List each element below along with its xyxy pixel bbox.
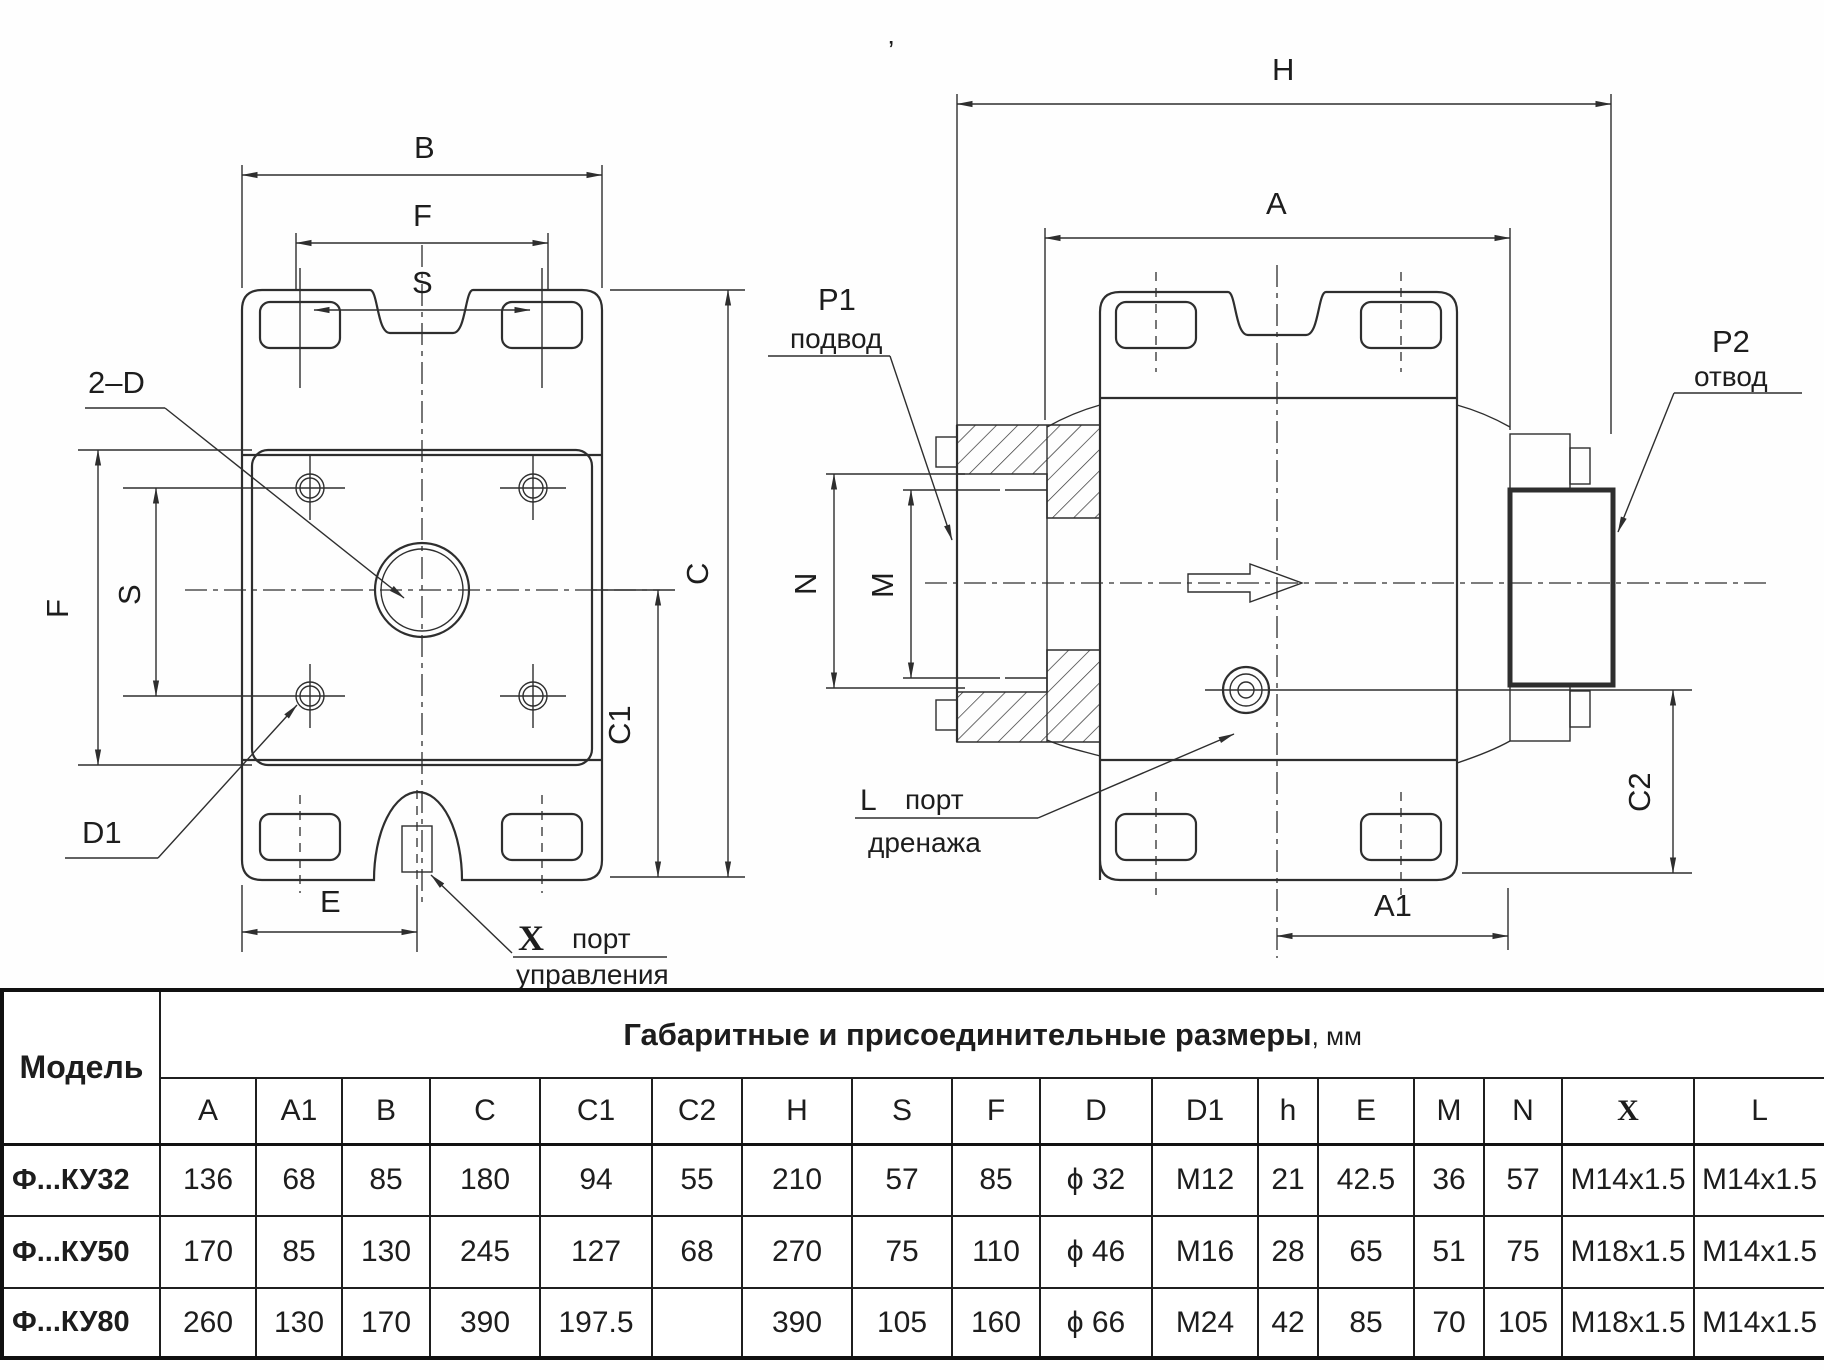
table-title-text: Габаритные и присоединительные размеры [623, 1017, 1311, 1052]
dim-label-s-side: S [112, 584, 147, 605]
cell: 110 [952, 1216, 1040, 1288]
callout-2d-label: 2–D [88, 365, 145, 400]
cell: 390 [430, 1288, 540, 1358]
cell: 130 [342, 1216, 430, 1288]
outlet-port-block [1457, 405, 1613, 763]
col-header-c: C [430, 1078, 540, 1144]
dim-label-n: N [788, 573, 823, 595]
cell: 42.5 [1318, 1144, 1414, 1216]
tick-mark: ’ [888, 35, 894, 66]
dim-label-e: E [320, 884, 341, 919]
dim-label-b: B [414, 130, 435, 165]
cell: 57 [1484, 1144, 1562, 1216]
l-port-symbol: L [860, 784, 877, 817]
cell: 68 [652, 1216, 742, 1288]
cell: 21 [1258, 1144, 1318, 1216]
cell: 75 [852, 1216, 952, 1288]
col-header-a1: A1 [256, 1078, 342, 1144]
cell: 85 [952, 1144, 1040, 1216]
table-title: Габаритные и присоединительные размеры, … [160, 990, 1824, 1078]
drawing-canvas: B F S F S C C1 [0, 0, 1824, 990]
cell: 28 [1258, 1216, 1318, 1288]
dim-label-c1: C1 [602, 705, 637, 745]
l-port-word1: порт [905, 784, 964, 815]
dimensions-table: Модель Габаритные и присоединительные ра… [0, 988, 1824, 1360]
col-header-d1: D1 [1152, 1078, 1258, 1144]
p2-label: P2 [1712, 324, 1750, 359]
col-header-e: E [1318, 1078, 1414, 1144]
bolt-holes [123, 456, 566, 728]
callout-2d-leader [165, 408, 404, 598]
cell: M18x1.5 [1562, 1216, 1694, 1288]
cell: 68 [256, 1144, 342, 1216]
callout-d1-leader [158, 705, 297, 858]
cell: 42 [1258, 1288, 1318, 1358]
col-header-x: X [1562, 1078, 1694, 1144]
cell: 85 [342, 1144, 430, 1216]
cell: 136 [160, 1144, 256, 1216]
col-header-d: D [1040, 1078, 1152, 1144]
flange-bolt [936, 437, 957, 467]
col-header-l: L [1694, 1078, 1824, 1144]
dim-label-c2: C2 [1622, 772, 1657, 812]
body-outline [1100, 292, 1457, 880]
flange-bolt [936, 700, 957, 730]
model-name: Ф...КУ32 [2, 1144, 160, 1216]
cell: 75 [1484, 1216, 1562, 1288]
cell: 180 [430, 1144, 540, 1216]
cell: 105 [1484, 1288, 1562, 1358]
cell: M14x1.5 [1694, 1216, 1824, 1288]
cell: 105 [852, 1288, 952, 1358]
dim-label-s-top: S [412, 265, 433, 300]
x-port-leader [431, 875, 512, 953]
cell: 170 [342, 1288, 430, 1358]
cell: M18x1.5 [1562, 1288, 1694, 1358]
cell: M12 [1152, 1144, 1258, 1216]
col-header-s: S [852, 1078, 952, 1144]
cell: M24 [1152, 1288, 1258, 1358]
table-row: Ф...КУ32 136 68 85 180 94 55 210 57 85 ϕ… [2, 1144, 1824, 1216]
cell: M16 [1152, 1216, 1258, 1288]
dim-label-c: C [680, 563, 715, 585]
col-header-h: H [742, 1078, 852, 1144]
col-header-h-small: h [1258, 1078, 1318, 1144]
x-port-square [402, 826, 432, 872]
x-port-symbol: X [518, 918, 544, 958]
model-name: Ф...КУ80 [2, 1288, 160, 1358]
col-header-b: B [342, 1078, 430, 1144]
cell: 85 [256, 1216, 342, 1288]
dim-label-f-top: F [413, 198, 432, 233]
col-header-c1: C1 [540, 1078, 652, 1144]
cell: 270 [742, 1216, 852, 1288]
cell [652, 1288, 742, 1358]
callout-d1-label: D1 [82, 815, 122, 850]
p1-label: P1 [818, 282, 856, 317]
dim-label-h: H [1272, 52, 1294, 87]
cell: 197.5 [540, 1288, 652, 1358]
cell: ϕ 46 [1040, 1216, 1152, 1288]
cell: 51 [1414, 1216, 1484, 1288]
table-row: Ф...КУ80 260 130 170 390 197.5 390 105 1… [2, 1288, 1824, 1358]
inlet-flange-section [936, 405, 1100, 756]
technical-drawing-page: B F S F S C C1 [0, 0, 1824, 1370]
dim-label-a: A [1266, 186, 1287, 221]
table-title-unit: , мм [1312, 1021, 1362, 1051]
cell: ϕ 32 [1040, 1144, 1152, 1216]
p1-leader [890, 356, 952, 540]
model-name: Ф...КУ50 [2, 1216, 160, 1288]
cell: 57 [852, 1144, 952, 1216]
p2-leader [1618, 393, 1674, 532]
table-row: Ф...КУ50 170 85 130 245 127 68 270 75 11… [2, 1216, 1824, 1288]
cell: 127 [540, 1216, 652, 1288]
l-port-word2: дренажа [868, 827, 981, 858]
col-header-m: M [1414, 1078, 1484, 1144]
slot-bottom-left [1116, 814, 1196, 860]
cell: 65 [1318, 1216, 1414, 1288]
slot-bottom-right [502, 814, 582, 860]
cell: 70 [1414, 1288, 1484, 1358]
cell: 170 [160, 1216, 256, 1288]
cell: ϕ 66 [1040, 1288, 1152, 1358]
front-view: B F S F S C C1 [40, 130, 745, 990]
cell: 245 [430, 1216, 540, 1288]
cell: 55 [652, 1144, 742, 1216]
cell: M14x1.5 [1562, 1144, 1694, 1216]
dim-label-m: M [865, 572, 900, 598]
col-header-c2: C2 [652, 1078, 742, 1144]
slot-bottom-left [260, 814, 340, 860]
col-header-n: N [1484, 1078, 1562, 1144]
cell: M14x1.5 [1694, 1288, 1824, 1358]
cell: 85 [1318, 1288, 1414, 1358]
col-header-f: F [952, 1078, 1040, 1144]
model-column-header: Модель [2, 990, 160, 1144]
x-port-word2: управления [516, 959, 669, 990]
col-header-a: A [160, 1078, 256, 1144]
dim-label-f-side: F [40, 599, 75, 618]
cell: 160 [952, 1288, 1040, 1358]
cell: 210 [742, 1144, 852, 1216]
cell: M14x1.5 [1694, 1144, 1824, 1216]
cell: 260 [160, 1288, 256, 1358]
cell: 36 [1414, 1144, 1484, 1216]
p1-desc: подвод [790, 323, 882, 354]
p2-desc: отвод [1694, 361, 1768, 392]
cell: 390 [742, 1288, 852, 1358]
cell: 130 [256, 1288, 342, 1358]
dim-label-a1: A1 [1374, 888, 1412, 923]
x-port-word1: порт [572, 923, 631, 954]
cell: 94 [540, 1144, 652, 1216]
slot-bottom-right [1361, 814, 1441, 860]
side-view: H ’ A N M A1 C2 [768, 35, 1802, 958]
